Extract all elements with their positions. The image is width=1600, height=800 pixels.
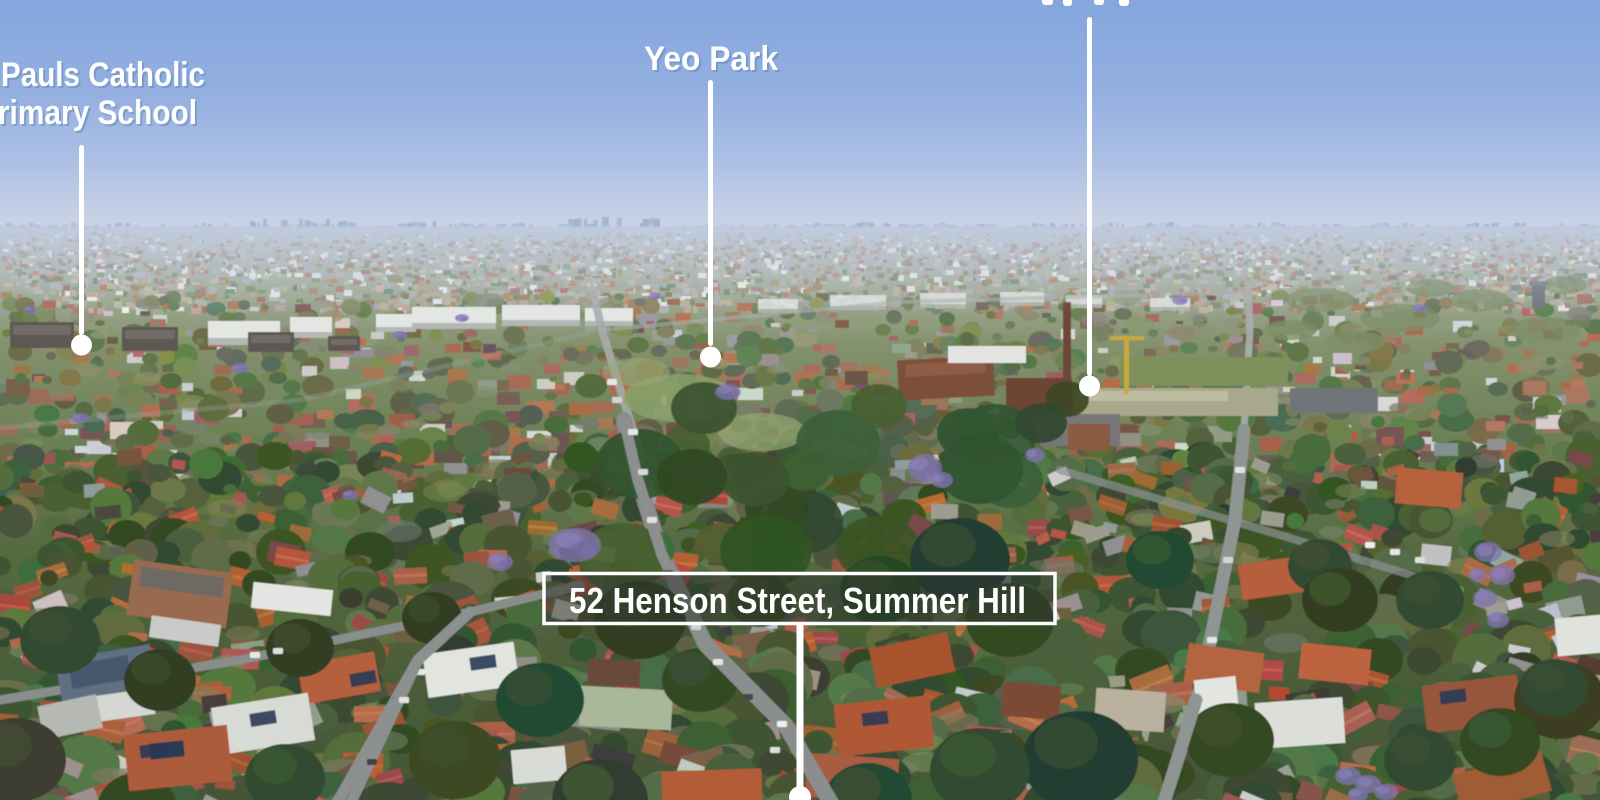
svg-text:Pauls Catholic: Pauls Catholic	[1, 56, 205, 94]
svg-text:Yeo Park: Yeo Park	[644, 40, 778, 78]
svg-text:52 Henson Street, Summer Hill: 52 Henson Street, Summer Hill	[569, 580, 1026, 621]
svg-text:Primary School: Primary School	[0, 94, 197, 132]
